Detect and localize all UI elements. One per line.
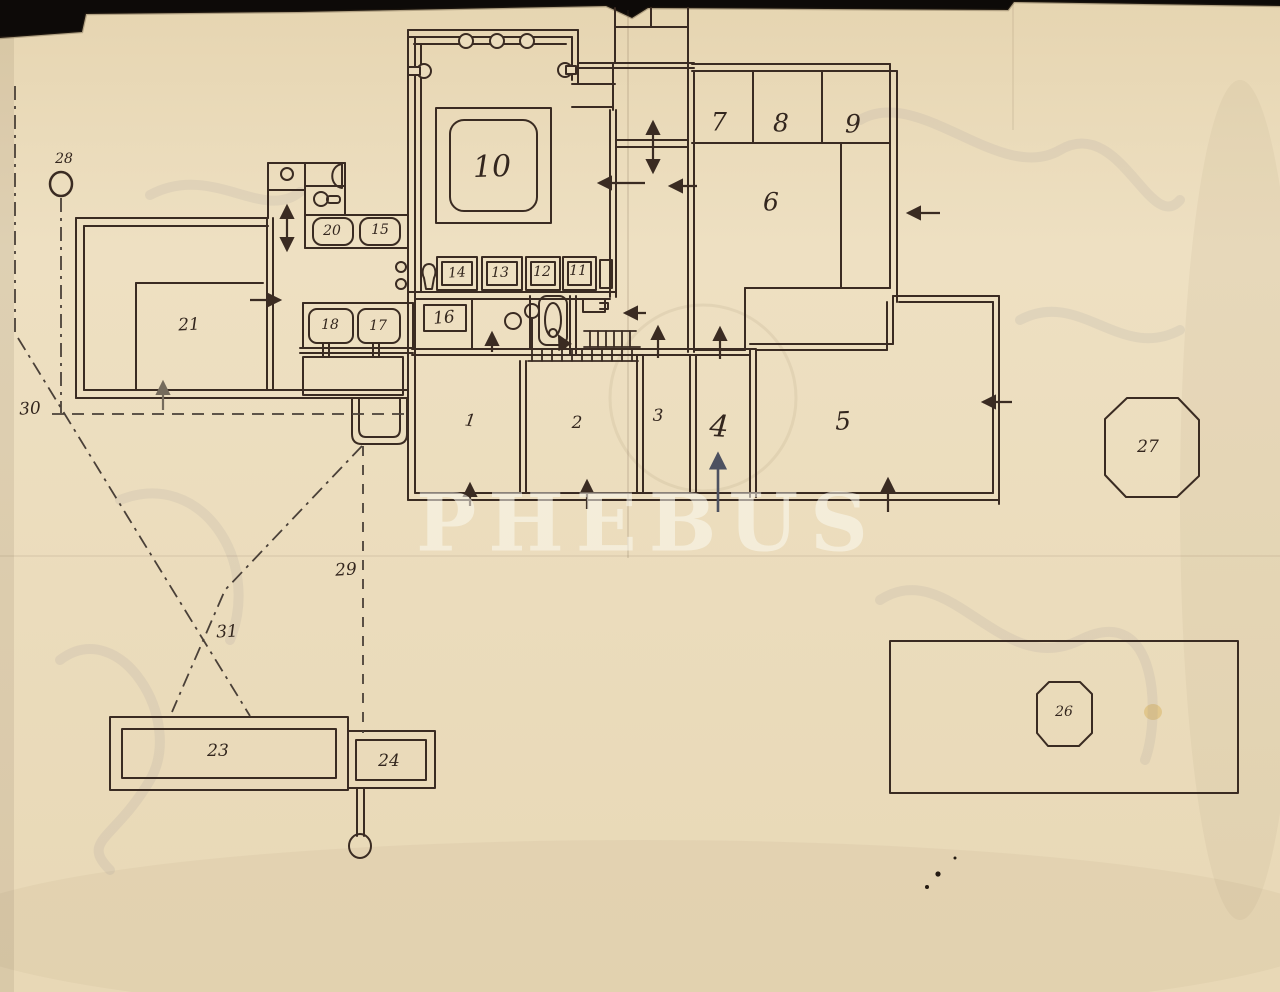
room-label-15: 15 <box>371 222 389 238</box>
room-label-11: 11 <box>569 263 587 279</box>
room-label-12: 12 <box>533 264 551 280</box>
line-label-31: 31 <box>216 621 239 642</box>
line-label-29: 29 <box>335 559 358 580</box>
scanned-floor-plan-page: 10 7 8 9 6 20 15 14 13 12 11 16 18 17 21… <box>0 0 1280 992</box>
room-label-6: 6 <box>763 188 779 217</box>
phebus-watermark: PHEBUS <box>416 475 880 569</box>
room-label-20: 20 <box>323 223 341 239</box>
octagon-label-26: 26 <box>1055 704 1073 720</box>
room-label-5: 5 <box>834 406 851 436</box>
room-label-9: 9 <box>845 110 861 139</box>
room-label-14: 14 <box>448 264 467 281</box>
room-label-13: 13 <box>491 265 509 281</box>
room-label-18: 18 <box>321 317 339 333</box>
room-label-8: 8 <box>773 109 789 138</box>
room-label-2: 2 <box>572 413 583 433</box>
room-label-16: 16 <box>432 307 455 329</box>
column-circles <box>459 34 534 48</box>
room-label-7: 7 <box>711 108 727 137</box>
room-label-21: 21 <box>178 314 201 335</box>
line-label-30: 30 <box>19 398 42 419</box>
octagon-label-27: 27 <box>1137 437 1159 457</box>
point-label-28: 28 <box>55 151 73 167</box>
room-label-4: 4 <box>708 409 729 445</box>
room-label-10: 10 <box>472 149 511 185</box>
structure-label-23: 23 <box>207 741 229 761</box>
room-label-3: 3 <box>653 406 664 426</box>
structure-label-24: 24 <box>378 751 400 771</box>
room-label-17: 17 <box>369 318 387 334</box>
